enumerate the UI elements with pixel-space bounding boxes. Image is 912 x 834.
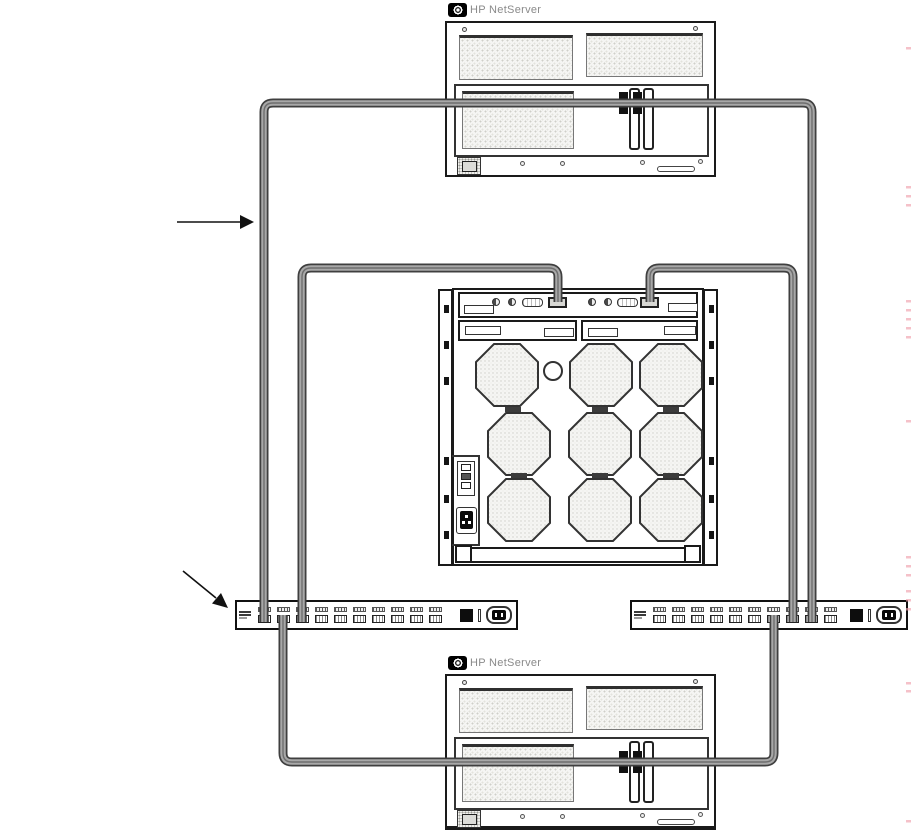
hub-port-jack [372, 615, 385, 623]
hub-port-label-icon [391, 607, 404, 612]
handle-slot [657, 819, 695, 825]
hp-logo-glyph-icon [453, 5, 463, 15]
hub-port [785, 607, 800, 623]
hub-port-label-icon [710, 607, 723, 612]
hub-model-label-icon [634, 611, 648, 619]
hub-port [333, 607, 348, 623]
hub-port-jack [429, 615, 442, 623]
callout-arrow-cable [177, 215, 254, 229]
screw-dot-icon [520, 161, 525, 166]
screw-dot-icon [640, 813, 645, 818]
handle-bar [588, 328, 618, 337]
top-left-vent-panel [459, 35, 573, 80]
hub-port-jack [334, 615, 347, 623]
hub-port [295, 607, 310, 623]
scsi-adapter-card-2 [643, 741, 654, 803]
hub-port-label-icon [767, 607, 780, 612]
hub-port-jack [353, 615, 366, 623]
hub-port-jack [786, 615, 799, 623]
hub-port-label-icon [410, 607, 423, 612]
hub-port-jack [391, 615, 404, 623]
switch-button [461, 482, 471, 489]
hub-port-jack [805, 615, 818, 623]
hub-power-button [460, 609, 473, 622]
switch-button [461, 464, 471, 471]
base-foot-right [684, 545, 701, 563]
hp-logo-glyph-icon [453, 658, 463, 668]
hub-port-jack [710, 615, 723, 623]
hub-port-jack [277, 615, 290, 623]
hub-model-label-icon [239, 611, 253, 619]
hub-port [823, 607, 838, 623]
hub-port [652, 607, 667, 623]
lower-left-vent-panel [462, 744, 574, 802]
screw-icon [462, 680, 467, 685]
hub-port [766, 607, 781, 623]
top-right-vent-panel [586, 686, 703, 730]
lower-left-vent-panel [462, 91, 574, 149]
hub-port-label-icon [805, 607, 818, 612]
lower-bay [454, 84, 709, 157]
screw-dot-icon [560, 161, 565, 166]
hub-port [709, 607, 724, 623]
vent-slot-left [464, 305, 494, 314]
top-server-body [445, 21, 716, 177]
hub-port [428, 607, 443, 623]
hub-port-jack [258, 615, 271, 623]
lower-bay [454, 737, 709, 810]
screw-dot-icon [640, 160, 645, 165]
hub-port-jack [691, 615, 704, 623]
hub-port-label-icon [353, 607, 366, 612]
base-foot-left [455, 545, 472, 563]
hub-port-label-icon [334, 607, 347, 612]
screw-dot-icon [698, 812, 703, 817]
rack-ear-left [438, 289, 453, 566]
page-edge-artifacts [906, 47, 911, 823]
hub-port [314, 607, 329, 623]
hub-power-inlet-icon [876, 606, 902, 624]
hub-port-jack [410, 615, 423, 623]
scsi-hub-left [235, 600, 518, 630]
hub-port-label-icon [729, 607, 742, 612]
hub-port-label-icon [653, 607, 666, 612]
hub-port-label-icon [277, 607, 290, 612]
scsi-adapter-card-1 [629, 88, 640, 150]
hp-logo-icon [448, 3, 467, 17]
screw-dot-icon [520, 814, 525, 819]
hub-port-jack [729, 615, 742, 623]
enclosure-scsi-port-2 [640, 297, 659, 308]
hub-port-label-icon [296, 607, 309, 612]
hub-port [352, 607, 367, 623]
bottom-server-body [445, 674, 716, 830]
scsi-adapter-card-2 [643, 88, 654, 150]
rear-connector-icon [457, 157, 481, 175]
rack-ear-right [703, 289, 718, 566]
hub-port-jack [748, 615, 761, 623]
hub-port [257, 607, 272, 623]
hub-port-label-icon [315, 607, 328, 612]
callout-arrow-hub [183, 571, 228, 608]
screw-icon [693, 679, 698, 684]
hp-logo-icon [448, 656, 467, 670]
power-switch-panel [457, 461, 475, 496]
handle-slot [657, 166, 695, 172]
hub-port [371, 607, 386, 623]
hub-port-jack [315, 615, 328, 623]
hub-port [276, 607, 291, 623]
hub-port-label-icon [258, 607, 271, 612]
rear-connector-inner [462, 161, 477, 172]
rear-connector-inner [462, 814, 477, 825]
serial-port-icon [617, 298, 638, 307]
hub-port [409, 607, 424, 623]
switch-button [461, 473, 471, 480]
power-inlet-pins [460, 511, 473, 529]
screw-dot-icon [698, 159, 703, 164]
hub-port-label-icon [372, 607, 385, 612]
status-led-icon [604, 298, 612, 306]
screw-icon [693, 26, 698, 31]
diagram-canvas: HP NetServer [0, 0, 912, 834]
enclosure-scsi-port-1 [548, 297, 567, 308]
bottom-server-label: HP NetServer [470, 656, 541, 670]
hub-port-label-icon [748, 607, 761, 612]
hub-power-button [850, 609, 863, 622]
hub-port [728, 607, 743, 623]
handle-bar [465, 326, 501, 335]
hub-port [804, 607, 819, 623]
hub-port [390, 607, 405, 623]
hub-port [747, 607, 762, 623]
rear-connector-icon [457, 810, 481, 828]
base-bar [460, 547, 700, 563]
hub-port-jack [653, 615, 666, 623]
hub-port-label-icon [786, 607, 799, 612]
screw-dot-icon [560, 814, 565, 819]
hub-port-label-icon [691, 607, 704, 612]
hub-port-label-icon [429, 607, 442, 612]
status-led-icon [588, 298, 596, 306]
hub-port [671, 607, 686, 623]
rack-ear-holes [709, 305, 714, 313]
hub-port-label-icon [824, 607, 837, 612]
hub-port-label-icon [672, 607, 685, 612]
hub-port-jack [672, 615, 685, 623]
handle-bar [544, 328, 574, 337]
top-server-label: HP NetServer [470, 3, 541, 17]
top-right-vent-panel [586, 33, 703, 77]
hub-power-inlet-icon [486, 606, 512, 624]
status-led-icon [492, 298, 500, 306]
handle-panel-left [458, 320, 577, 341]
scsi-hub-right [630, 600, 908, 630]
hub-slot [868, 609, 871, 622]
status-led-icon [508, 298, 516, 306]
scsi-adapter-card-1 [629, 741, 640, 803]
hub-slot [478, 609, 481, 622]
rack-ear-holes [444, 305, 449, 313]
top-server-logo-row: HP NetServer [448, 3, 541, 17]
bottom-server-logo-row: HP NetServer [448, 656, 541, 670]
hub-port-jack [767, 615, 780, 623]
handle-bar [664, 326, 696, 335]
hub-port-jack [824, 615, 837, 623]
power-inlet-icon [456, 507, 477, 534]
screw-icon [462, 27, 467, 32]
top-left-vent-panel [459, 688, 573, 733]
vent-slot-right [668, 303, 698, 312]
handle-panel-right [581, 320, 698, 341]
hub-port-jack [296, 615, 309, 623]
hub-port [690, 607, 705, 623]
serial-port-icon [522, 298, 543, 307]
